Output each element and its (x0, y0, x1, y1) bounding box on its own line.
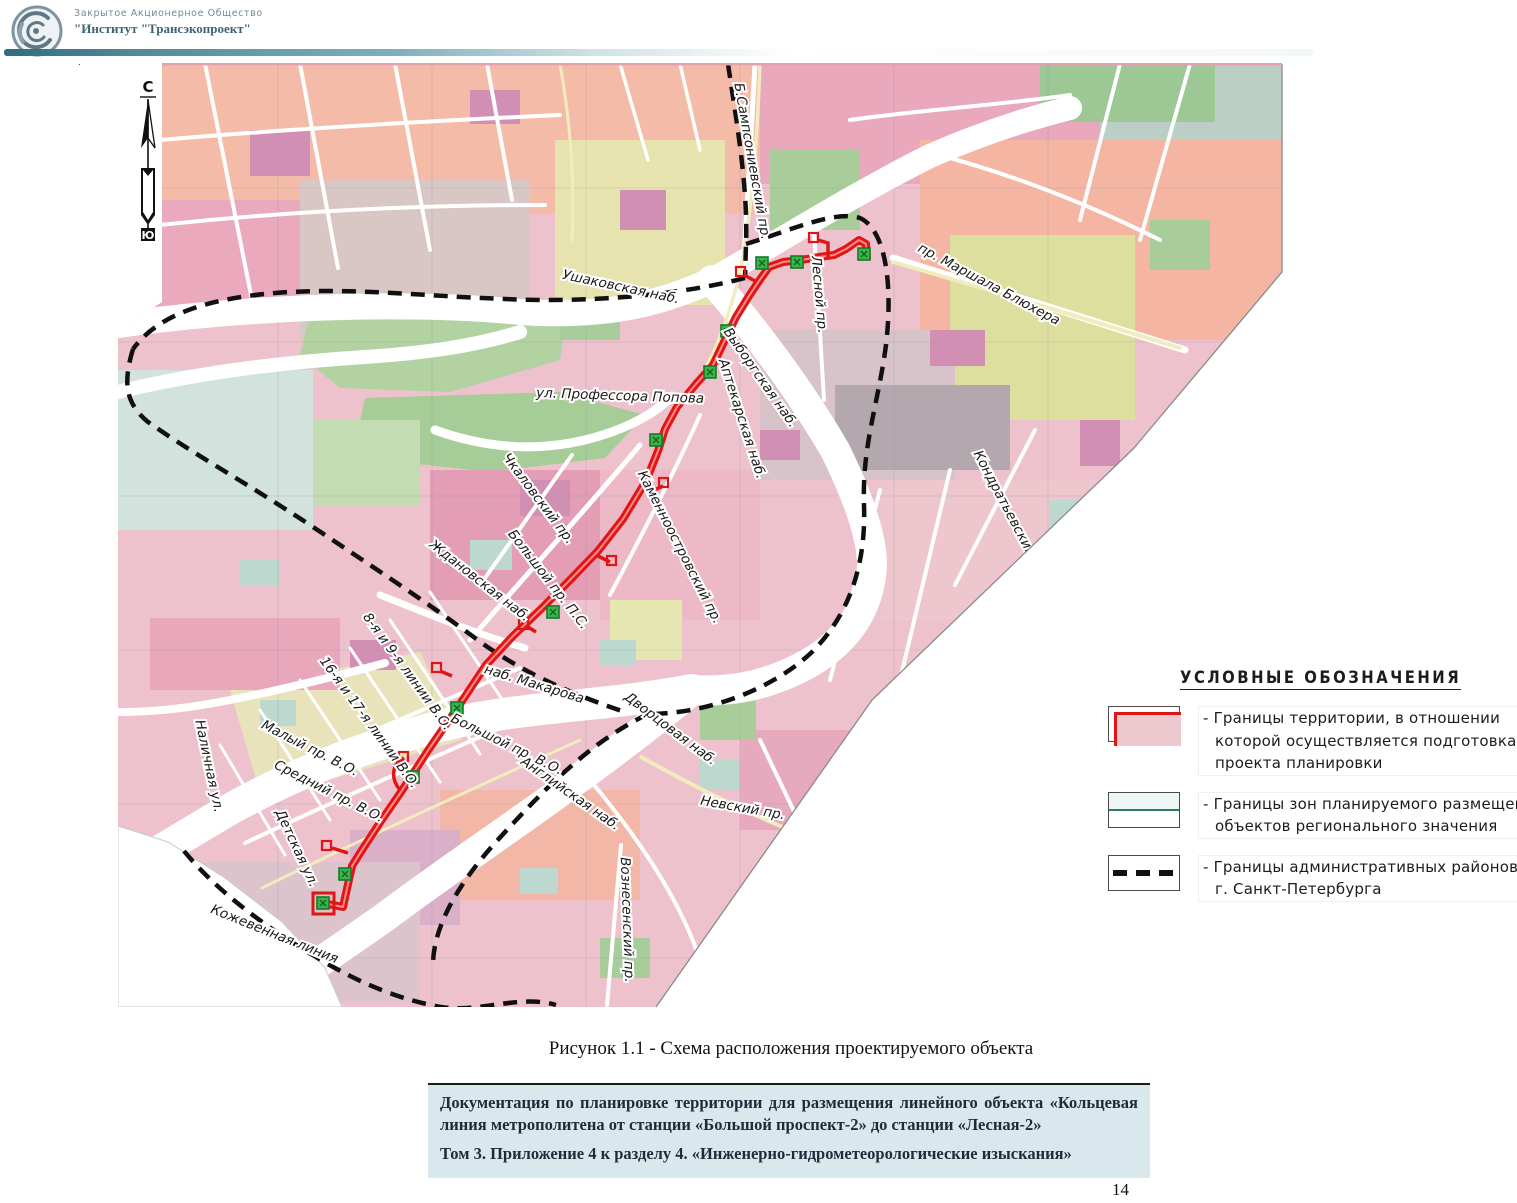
legend-items: - Границы территории, в отношениикоторой… (1108, 706, 1510, 902)
page-number: 14 (1112, 1180, 1129, 1200)
city-map: Ушаковская наб.Б.Сампсониевский пр.пр. М… (0, 0, 1517, 1203)
legend-line: проекта планировки (1203, 752, 1517, 775)
legend-title: УСЛОВНЫЕ ОБОЗНАЧЕНИЯ (1180, 668, 1461, 690)
legend-line: объектов регионального значения (1203, 815, 1517, 838)
legend-line: г. Санкт-Петербурга (1203, 878, 1517, 901)
org-name-line2: "Институт "Трансэкопроект" (74, 21, 263, 37)
legend-swatch-line-dashed (1108, 855, 1180, 891)
header-artifact: . (78, 58, 81, 68)
header-accent-bar (4, 49, 1314, 56)
legend-item-text: - Границы административных районовг. Сан… (1198, 855, 1517, 902)
org-name-line1: Закрытое Акционерное Общество (74, 8, 263, 19)
map-top-edge (162, 63, 1282, 66)
svg-text:Ю: Ю (142, 229, 155, 242)
footer-volume-line: Том 3. Приложение 4 к разделу 4. «Инжене… (440, 1144, 1138, 1164)
legend-item-2: - Границы административных районовг. Сан… (1108, 855, 1510, 902)
legend-item-0: - Границы территории, в отношениикоторой… (1108, 706, 1510, 776)
figure-caption: Рисунок 1.1 - Схема расположения проекти… (430, 1038, 1152, 1060)
legend-line: которой осуществляется подготовка (1203, 730, 1517, 753)
legend-item-text: - Границы зон планируемого размещенияобъ… (1198, 792, 1517, 839)
footer-doc-title: Документация по планировке территории дл… (440, 1092, 1138, 1137)
legend-item-1: - Границы зон планируемого размещенияобъ… (1108, 792, 1510, 839)
legend-line: - Границы зон планируемого размещения (1203, 793, 1517, 816)
legend-swatch-line-teal (1108, 792, 1180, 828)
legend-line: - Границы административных районов (1203, 856, 1517, 879)
page-header: Закрытое Акционерное Общество "Институт … (0, 0, 1517, 62)
legend-line: - Границы территории, в отношении (1203, 707, 1517, 730)
footer-info-box: Документация по планировке территории дл… (428, 1083, 1150, 1178)
compass: С Ю (140, 78, 156, 242)
legend-swatch-area-red (1108, 706, 1180, 742)
map-legend: УСЛОВНЫЕ ОБОЗНАЧЕНИЯ - Границы территори… (1108, 668, 1510, 902)
legend-item-text: - Границы территории, в отношениикоторой… (1198, 706, 1517, 776)
svg-text:С: С (142, 78, 153, 96)
document-page: Ушаковская наб.Б.Сампсониевский пр.пр. М… (0, 0, 1517, 1203)
